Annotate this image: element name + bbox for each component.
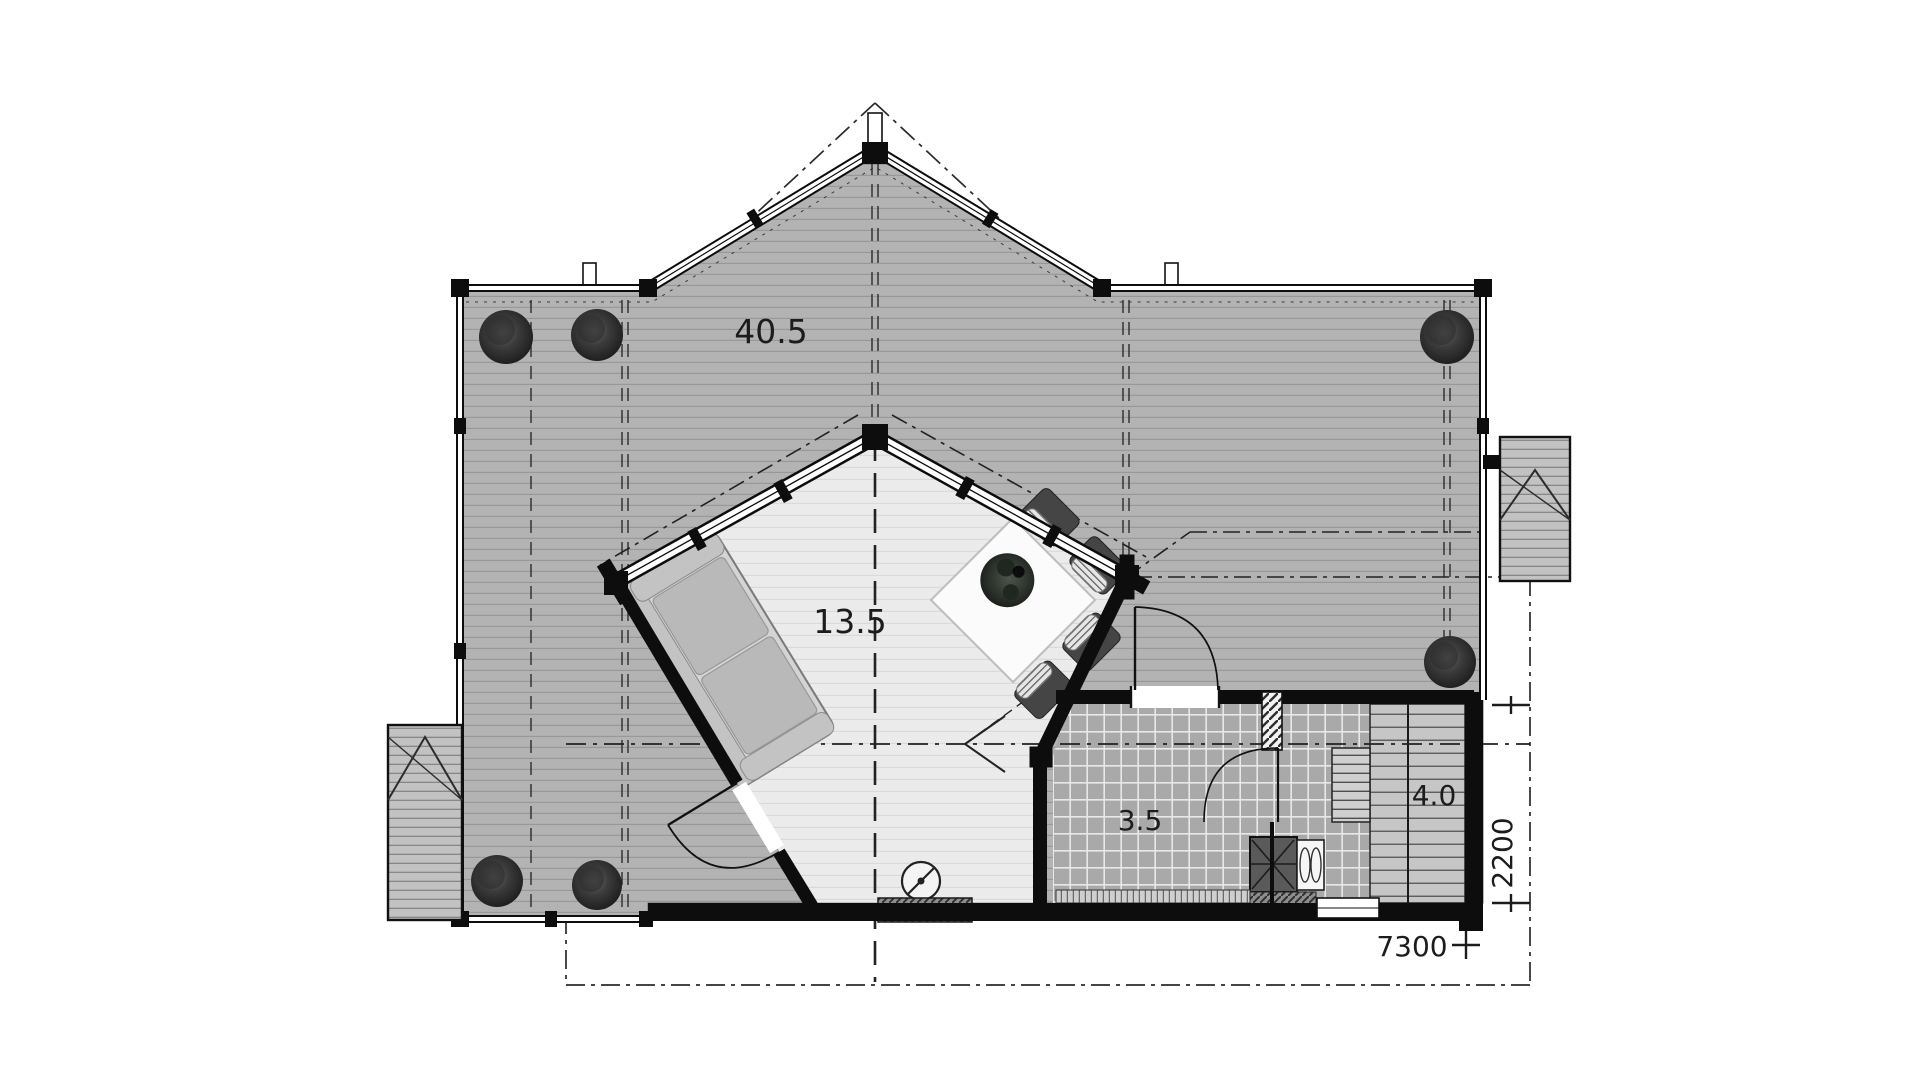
bush-icon xyxy=(471,855,523,907)
stairs-area-label: 4.0 xyxy=(1412,779,1457,812)
floor-plan-page: 40.5 13.5 3.5 4.0 2200 7300 xyxy=(0,0,1920,1080)
side-porch-left xyxy=(388,725,462,920)
bush-icon xyxy=(1424,636,1476,688)
dimension-7300-label: 7300 xyxy=(1376,930,1447,963)
floor-plan-drawing: 40.5 13.5 3.5 4.0 2200 7300 xyxy=(0,0,1920,1080)
bush-icon xyxy=(571,309,623,361)
bush-icon xyxy=(1420,310,1474,364)
dimension-2200-label: 2200 xyxy=(1486,817,1519,888)
terrace-area-label: 40.5 xyxy=(734,312,807,351)
stair-winder xyxy=(1332,748,1370,822)
window xyxy=(1317,898,1379,918)
stove-icon xyxy=(1250,837,1324,892)
bush-icon xyxy=(479,310,533,364)
side-steps-right xyxy=(1483,437,1570,581)
bush-icon xyxy=(572,860,622,910)
floor-drain-icon xyxy=(902,862,940,900)
shower-area-label: 3.5 xyxy=(1118,804,1163,837)
partition-stub xyxy=(1262,692,1282,750)
living-area-label: 13.5 xyxy=(813,602,886,641)
bench-strip xyxy=(1056,890,1250,903)
